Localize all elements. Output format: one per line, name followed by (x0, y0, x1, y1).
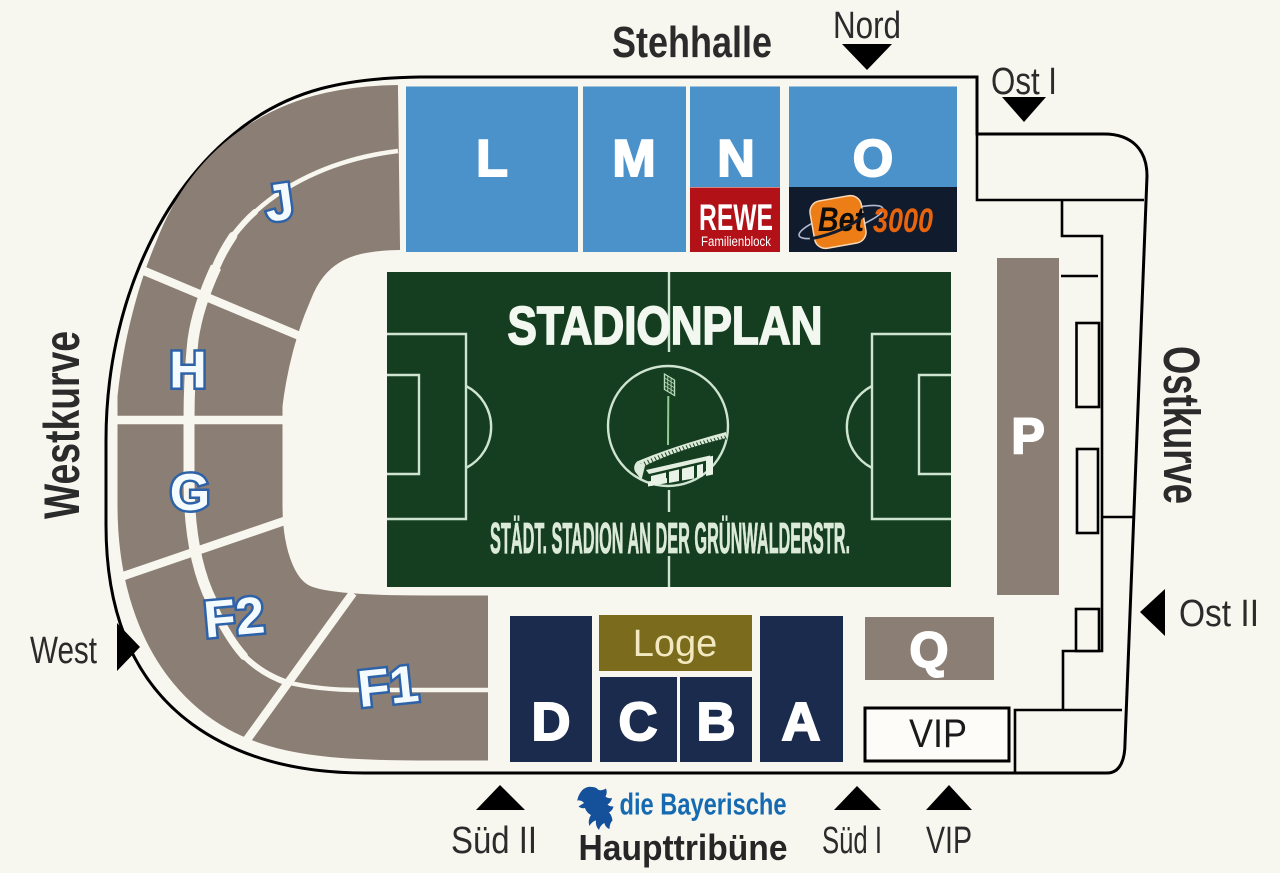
svg-text:die Bayerische: die Bayerische (620, 787, 787, 822)
svg-text:C: C (619, 692, 658, 752)
svg-text:STÄDT. STADION AN DER GRÜNWALD: STÄDT. STADION AN DER GRÜNWALDERSTR. (490, 514, 850, 563)
svg-text:Loge: Loge (633, 623, 718, 665)
svg-text:Ostkurve: Ostkurve (1153, 346, 1210, 504)
svg-text:F1: F1 (355, 655, 421, 719)
svg-text:N: N (717, 130, 755, 188)
svg-text:Nord: Nord (833, 5, 901, 47)
svg-text:Familienblock: Familienblock (701, 234, 771, 249)
svg-text:O: O (853, 130, 893, 188)
svg-text:B: B (697, 692, 736, 752)
svg-text:Westkurve: Westkurve (34, 331, 90, 519)
svg-text:M: M (612, 130, 655, 188)
svg-text:H: H (169, 342, 207, 400)
svg-text:G: G (170, 464, 210, 522)
svg-text:F2: F2 (201, 586, 267, 649)
svg-text:STADIONPLAN: STADIONPLAN (508, 296, 823, 356)
svg-text:Süd II: Süd II (451, 820, 537, 862)
svg-text:Süd I: Süd I (822, 820, 882, 862)
svg-text:Haupttribüne: Haupttribüne (579, 827, 788, 868)
svg-text:Ost II: Ost II (1179, 593, 1259, 635)
svg-text:Q: Q (910, 622, 949, 678)
svg-text:VIP: VIP (909, 712, 967, 756)
svg-text:REWE: REWE (699, 197, 773, 238)
svg-text:P: P (1011, 408, 1044, 464)
svg-text:VIP: VIP (926, 820, 972, 862)
svg-text:A: A (782, 692, 821, 752)
svg-text:L: L (476, 130, 508, 188)
svg-text:Ost I: Ost I (991, 61, 1057, 103)
svg-text:3000: 3000 (873, 202, 933, 240)
svg-text:West: West (30, 630, 97, 672)
svg-text:D: D (532, 692, 571, 752)
svg-text:Stehhalle: Stehhalle (612, 18, 772, 67)
